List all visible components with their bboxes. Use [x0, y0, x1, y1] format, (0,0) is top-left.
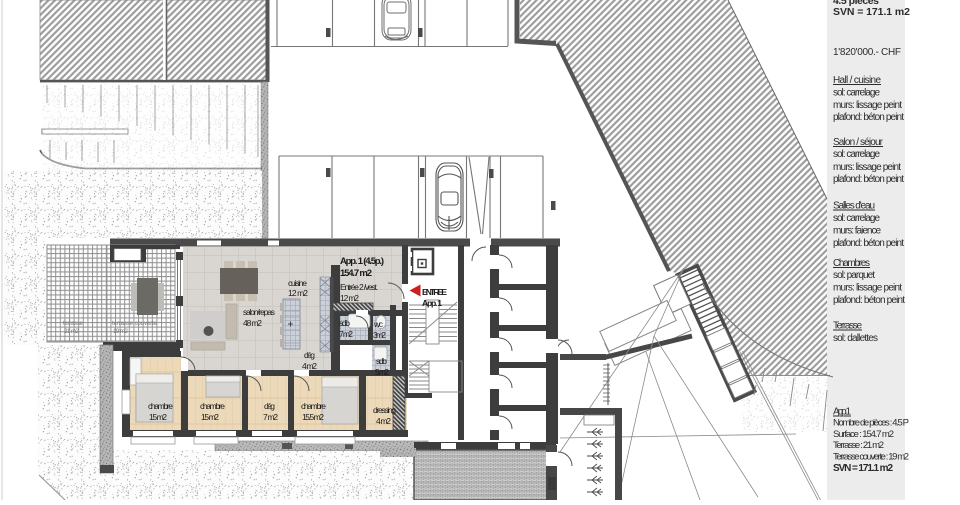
svg-text:salon/repas: salon/repas: [243, 307, 275, 317]
svg-text:sol: carrelage: sol: carrelage: [833, 88, 880, 99]
svg-text:App. 1: App. 1: [422, 298, 442, 308]
svg-text:Terrasse : 21 m2: Terrasse : 21 m2: [833, 440, 884, 451]
svg-text:Hall / cuisine: Hall / cuisine: [833, 75, 881, 86]
svg-text:12 m2: 12 m2: [340, 293, 359, 303]
svg-text:Nombre de pièces : 4.5 P: Nombre de pièces : 4.5 P: [833, 418, 909, 429]
svg-text:sol: dallettes: sol: dallettes: [833, 333, 878, 344]
svg-text:cuisine: cuisine: [288, 278, 307, 288]
svg-text:plafond: béton peint: plafond: béton peint: [833, 238, 904, 249]
svg-text:7 m2: 7 m2: [339, 329, 353, 339]
svg-text:19 m2: 19 m2: [113, 328, 129, 335]
svg-text:sdb: sdb: [339, 318, 350, 328]
svg-text:chambre: chambre: [301, 401, 326, 411]
svg-text:21 m2: 21 m2: [64, 328, 80, 335]
svg-text:ENTREE: ENTREE: [422, 287, 447, 297]
svg-text:terrasse couverte: terrasse couverte: [112, 320, 158, 327]
svg-text:15 m2: 15 m2: [149, 412, 167, 422]
svg-text:154.7 m2: 154.7 m2: [340, 268, 372, 279]
svg-text:15.5 m2: 15.5 m2: [302, 412, 324, 422]
svg-text:terrasse: terrasse: [63, 320, 84, 327]
svg-text:Entrée 2 /vest.: Entrée 2 /vest.: [340, 282, 378, 292]
svg-text:sdb: sdb: [376, 356, 387, 366]
svg-text:plafond: béton peint: plafond: béton peint: [833, 174, 904, 185]
svg-text:App. 1 (4.5p.): App. 1 (4.5p.): [340, 256, 384, 267]
svg-text:plafond: béton peint: plafond: béton peint: [833, 295, 905, 306]
svg-text:murs: lissage peint: murs: lissage peint: [833, 283, 902, 294]
svg-text:chambre: chambre: [200, 401, 225, 411]
svg-text:plafond: béton peint: plafond: béton peint: [833, 112, 904, 123]
svg-text:15 m2: 15 m2: [201, 412, 219, 422]
svg-text:Salon / séjour: Salon / séjour: [833, 137, 884, 148]
svg-text:Salles d'eau: Salles d'eau: [833, 201, 875, 212]
svg-text:dég: dég: [304, 350, 315, 360]
svg-text:1'820'000.- CHF: 1'820'000.- CHF: [833, 47, 901, 58]
svg-text:Surface : 154.7 m2: Surface : 154.7 m2: [833, 429, 894, 440]
svg-text:48 m2: 48 m2: [243, 318, 262, 328]
svg-text:4 m2: 4 m2: [376, 416, 391, 426]
svg-text:12 m2: 12 m2: [288, 288, 308, 298]
svg-text:App.1: App.1: [833, 407, 851, 418]
svg-text:Terrasse: Terrasse: [833, 321, 862, 332]
svg-text:5 m2: 5 m2: [375, 367, 389, 377]
svg-text:murs: faience: murs: faience: [833, 226, 881, 237]
svg-text:murs: lissage peint: murs: lissage peint: [833, 162, 901, 173]
svg-text:3m2: 3m2: [373, 330, 386, 340]
svg-text:sol: parquet: sol: parquet: [833, 270, 875, 281]
svg-text:4 m2: 4 m2: [302, 361, 317, 371]
svg-text:7 m2: 7 m2: [263, 412, 278, 422]
svg-text:murs: lissage peint: murs: lissage peint: [833, 100, 902, 111]
svg-text:SVN = 171.1 m2: SVN = 171.1 m2: [833, 463, 893, 474]
svg-text:sol: carrelage: sol: carrelage: [833, 149, 880, 160]
svg-text:dég: dég: [264, 401, 275, 411]
svg-text:Chambres: Chambres: [833, 258, 870, 269]
svg-text:wc: wc: [373, 319, 384, 329]
svg-text:chambre: chambre: [148, 401, 173, 411]
svg-text:dressing: dressing: [373, 405, 396, 415]
svg-text:Terrasse couverte : 19 m2: Terrasse couverte : 19 m2: [833, 452, 909, 463]
svg-text:SVN = 171.1 m2: SVN = 171.1 m2: [833, 6, 910, 18]
svg-text:sol: carrelage: sol: carrelage: [833, 213, 880, 224]
